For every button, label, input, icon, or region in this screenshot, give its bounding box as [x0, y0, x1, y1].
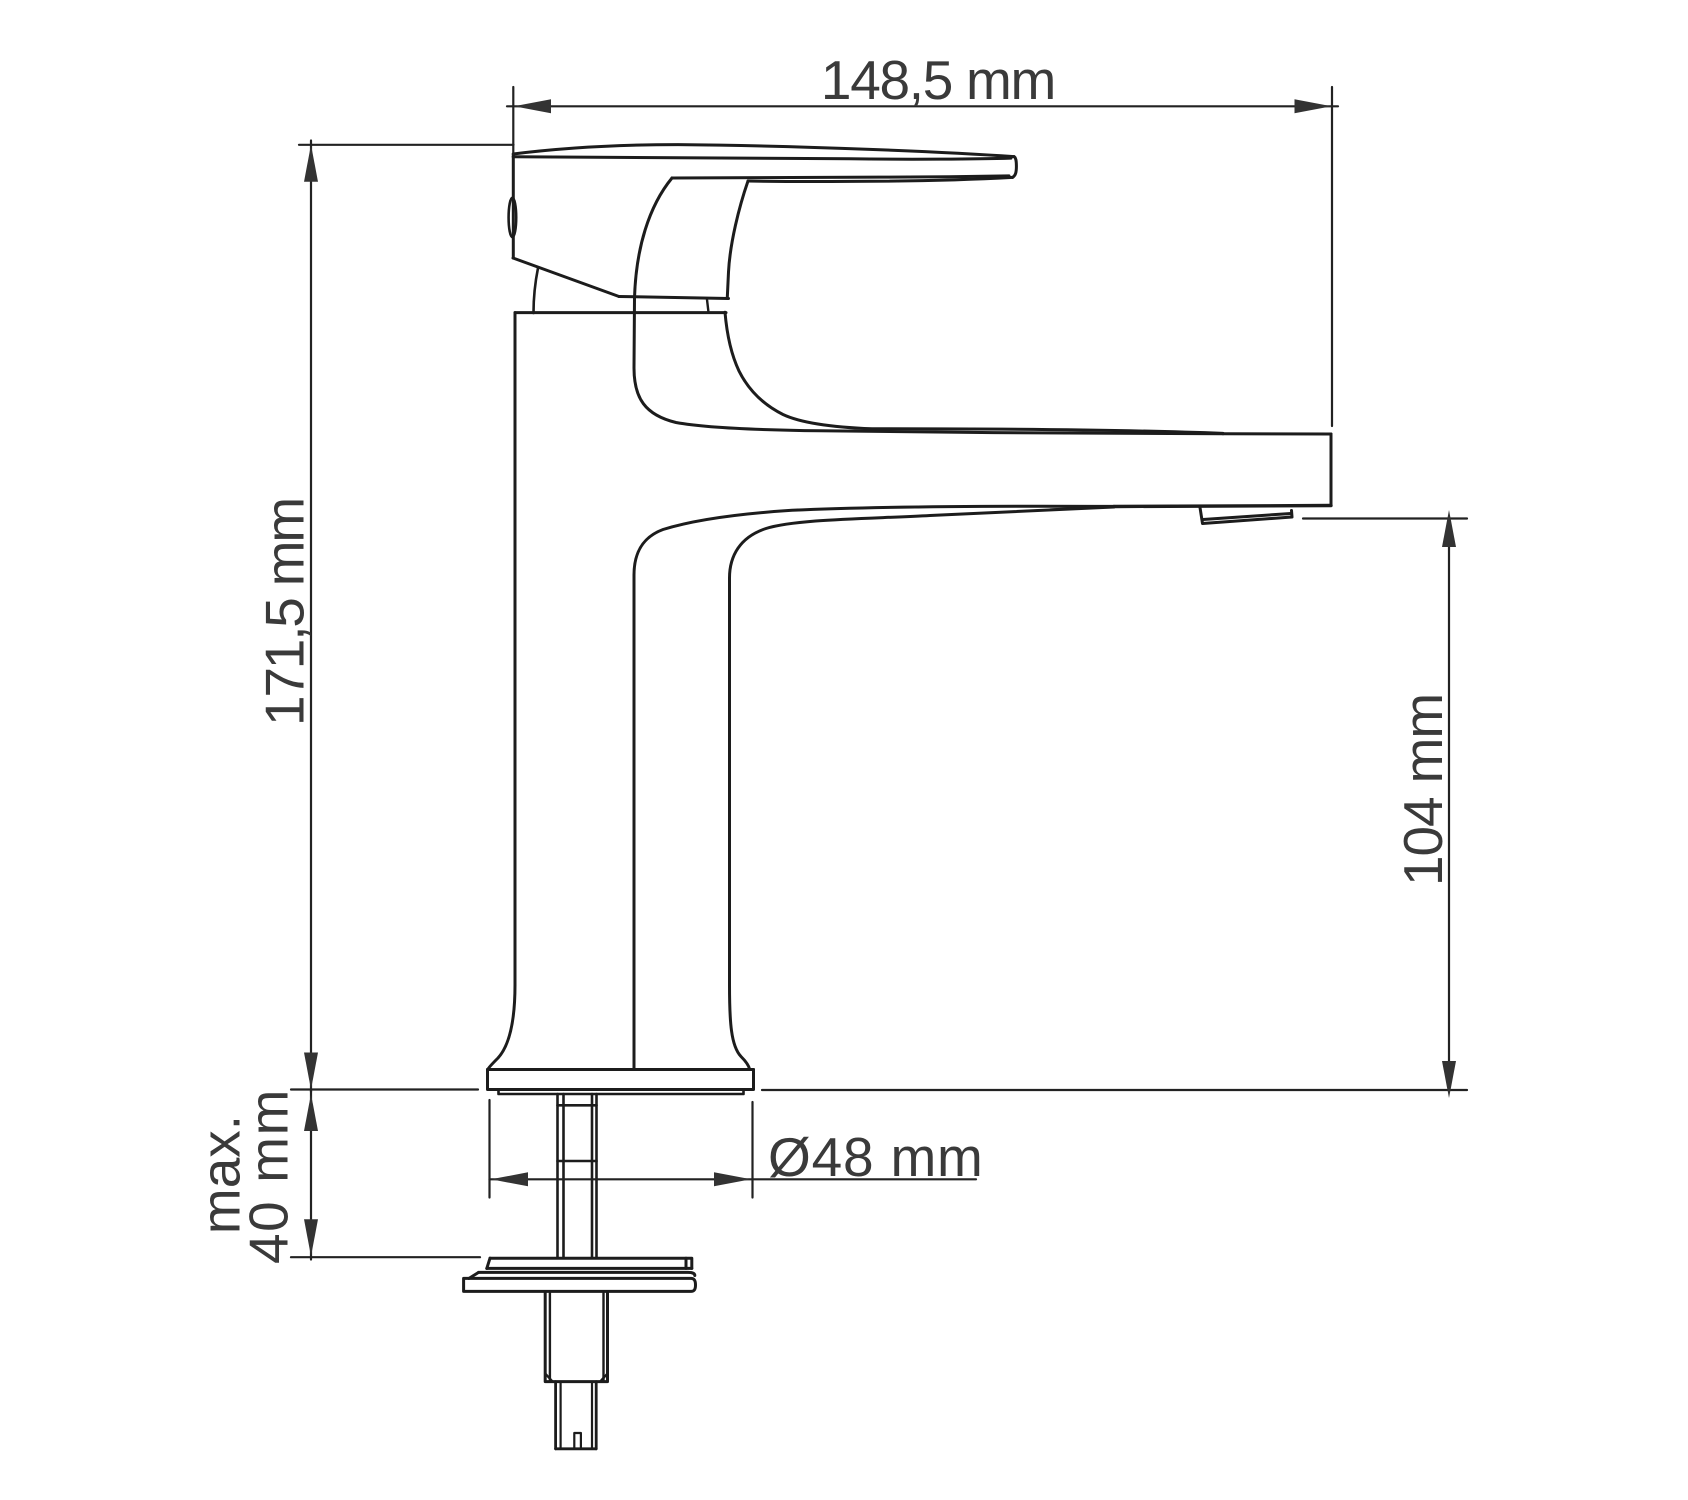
svg-text:40 mm: 40 mm	[238, 1088, 300, 1264]
svg-text:148,5 mm: 148,5 mm	[821, 49, 1055, 111]
svg-text:171,5 mm: 171,5 mm	[254, 499, 316, 726]
svg-text:Ø48 mm: Ø48 mm	[768, 1126, 984, 1188]
svg-text:104 mm: 104 mm	[1392, 694, 1454, 886]
